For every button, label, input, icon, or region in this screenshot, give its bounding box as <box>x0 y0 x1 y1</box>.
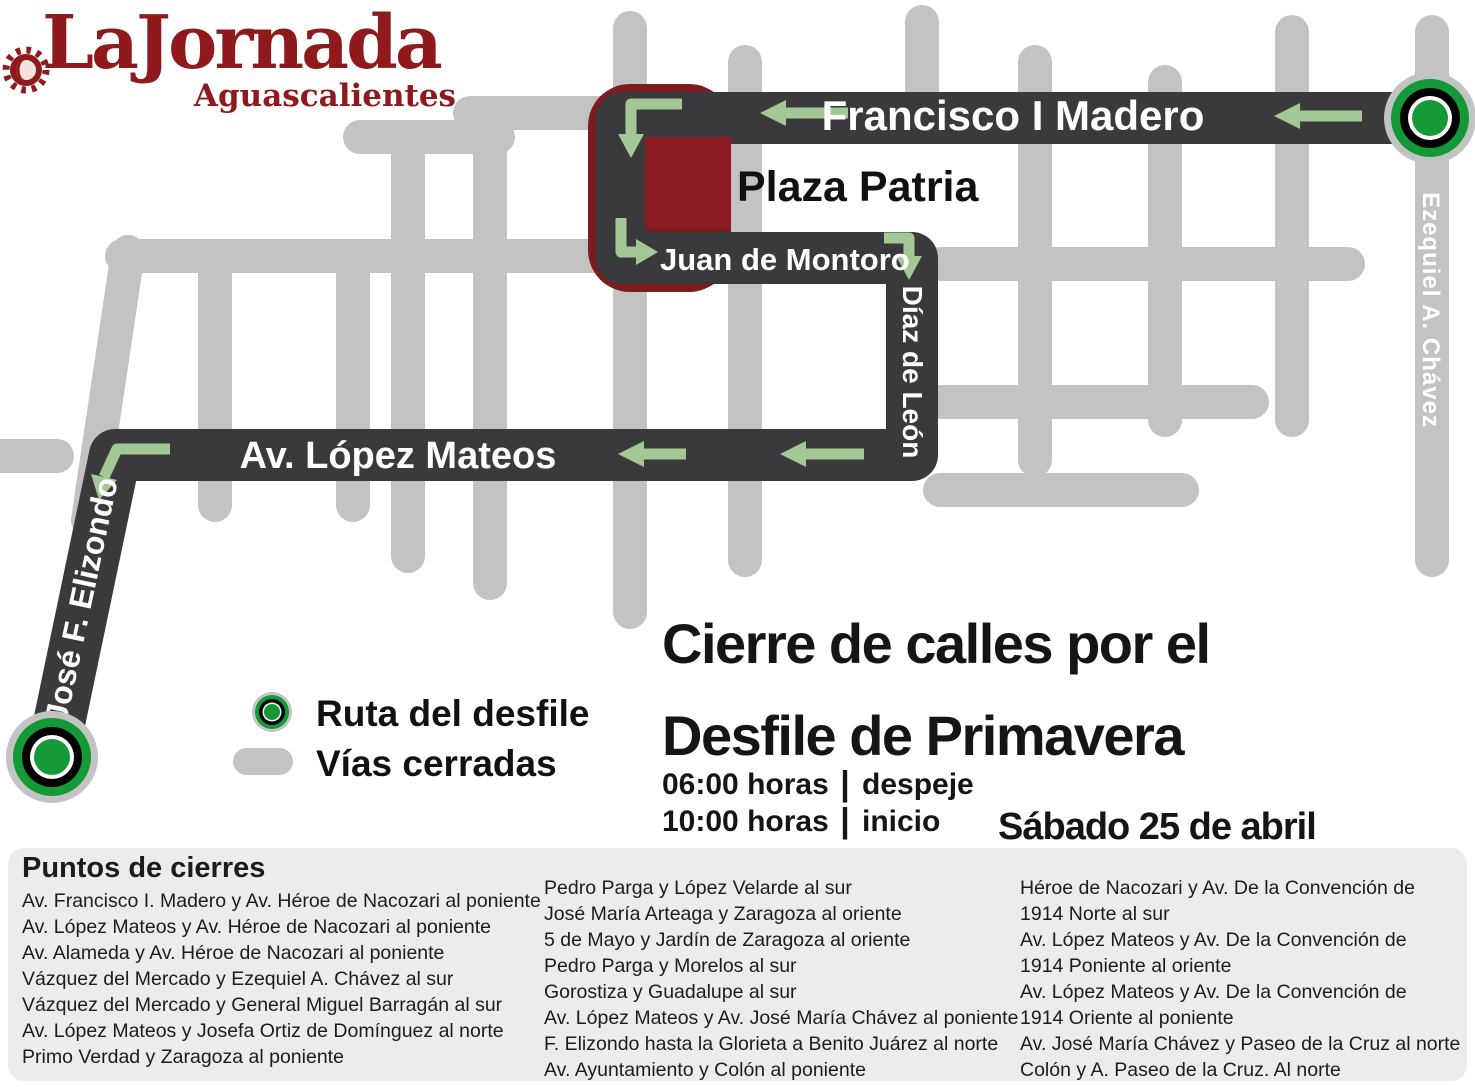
street-label-madero: Francisco I Madero <box>822 92 1205 139</box>
closure-item: Av. López Mateos y Av. De la Convención … <box>1020 927 1460 953</box>
legend: Ruta del desfile Vías cerradas <box>233 692 589 784</box>
closure-item: Primo Verdad y Zaragoza al poniente <box>22 1044 541 1070</box>
closure-item: Av. López Mateos y Av. De la Convención … <box>1020 979 1460 1005</box>
schedule-label: inicio <box>862 805 940 839</box>
closures-panel: Puntos de cierres Av. Francisco I. Mader… <box>8 848 1467 1081</box>
plaza-patria-label: Plaza Patria <box>737 163 979 211</box>
closure-item: Pedro Parga y López Velarde al sur <box>544 875 1018 901</box>
closure-item: José María Arteaga y Zaragoza al oriente <box>544 901 1018 927</box>
la-jornada-logo: LaJornada Aguascalientes <box>0 6 470 116</box>
street-label-lopez-mateos: Av. López Mateos <box>240 435 557 477</box>
schedule-separator: | <box>834 802 856 841</box>
closure-item: Colón y A. Paseo de la Cruz. Al norte <box>1020 1057 1460 1083</box>
headline-line1: Cierre de calles por el <box>662 598 1362 690</box>
closures-heading: Puntos de cierres <box>22 852 265 885</box>
closure-item: Av. López Mateos y Josefa Ortiz de Domín… <box>22 1018 541 1044</box>
schedule-row: 10:00 horas | inicio <box>662 803 974 840</box>
marker-center-green <box>264 704 280 720</box>
plaza-patria-square <box>645 137 731 228</box>
closure-item: Av. Francisco I. Madero y Av. Héroe de N… <box>22 888 541 914</box>
closure-item: Av. Ayuntamiento y Colón al poniente <box>544 1057 1018 1083</box>
route-marker-start <box>1384 72 1475 164</box>
event-date: Sábado 25 de abril <box>998 806 1316 849</box>
closures-column-1: Av. Francisco I. Madero y Av. Héroe de N… <box>22 888 541 1070</box>
schedule-label: despeje <box>862 768 974 802</box>
infographic-canvas: Francisco I Madero Juan de Montoro Av. L… <box>0 0 1475 1087</box>
marker-center-green <box>1412 100 1448 136</box>
street-label-montoro: Juan de Montoro <box>660 242 910 277</box>
street-label-diaz-de-leon: Díaz de León <box>897 286 928 459</box>
schedule-time: 10:00 horas <box>662 805 834 839</box>
closure-item: 1914 Norte al sur <box>1020 901 1460 927</box>
route-marker-end <box>6 711 98 803</box>
closure-item: Héroe de Nacozari y Av. De la Convención… <box>1020 875 1460 901</box>
closure-item: Pedro Parga y Morelos al sur <box>544 953 1018 979</box>
closure-item: Vázquez del Mercado y General Miguel Bar… <box>22 992 541 1018</box>
closure-item: Vázquez del Mercado y Ezequiel A. Chávez… <box>22 966 541 992</box>
closure-item: Av. López Mateos y Av. José María Chávez… <box>544 1005 1018 1031</box>
closure-item: 1914 Oriente al poniente <box>1020 1005 1460 1031</box>
logo-subtitle: Aguascalientes <box>42 78 456 114</box>
schedule-row: 06:00 horas | despeje <box>662 766 974 803</box>
closure-item: F. Elizondo hasta la Glorieta a Benito J… <box>544 1031 1018 1057</box>
closures-column-2: Pedro Parga y López Velarde al surJosé M… <box>544 875 1018 1083</box>
schedule-separator: | <box>834 765 856 804</box>
legend-closed-road-icon <box>233 748 293 775</box>
headline: Cierre de calles por el Desfile de Prima… <box>662 598 1362 782</box>
legend-route-label: Ruta del desfile <box>316 693 589 734</box>
schedule: 06:00 horas | despeje 10:00 horas | inic… <box>662 766 974 840</box>
closure-item: Av. Alameda y Av. Héroe de Nacozari al p… <box>22 940 541 966</box>
logo-title: LaJornada <box>42 0 458 86</box>
closure-item: Av. López Mateos y Av. Héroe de Nacozari… <box>22 914 541 940</box>
closure-item: 1914 Poniente al oriente <box>1020 953 1460 979</box>
closures-column-3: Héroe de Nacozari y Av. De la Convención… <box>1020 875 1460 1083</box>
legend-route-marker-icon <box>252 692 292 732</box>
street-label-ezequiel: Ezequiel A. Chávez <box>1417 192 1444 428</box>
marker-center-green <box>34 739 70 775</box>
legend-closed-label: Vías cerradas <box>316 743 557 784</box>
schedule-time: 06:00 horas <box>662 768 834 802</box>
closure-item: Av. José María Chávez y Paseo de la Cruz… <box>1020 1031 1460 1057</box>
closure-item: 5 de Mayo y Jardín de Zaragoza al orient… <box>544 927 1018 953</box>
closure-item: Gorostiza y Guadalupe al sur <box>544 979 1018 1005</box>
